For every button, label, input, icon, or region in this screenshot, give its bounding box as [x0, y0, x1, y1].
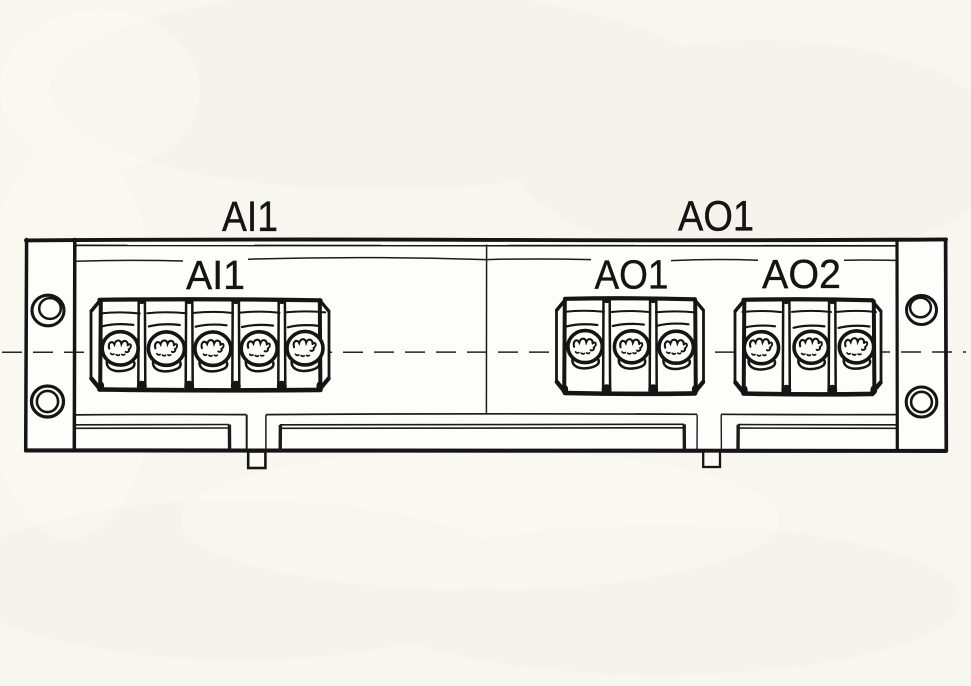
svg-text:AO1: AO1 [678, 193, 754, 240]
svg-text:AI1: AI1 [186, 252, 245, 298]
svg-text:AI1: AI1 [222, 194, 278, 241]
svg-text:AO1: AO1 [595, 252, 669, 298]
svg-text:AO2: AO2 [762, 251, 841, 297]
